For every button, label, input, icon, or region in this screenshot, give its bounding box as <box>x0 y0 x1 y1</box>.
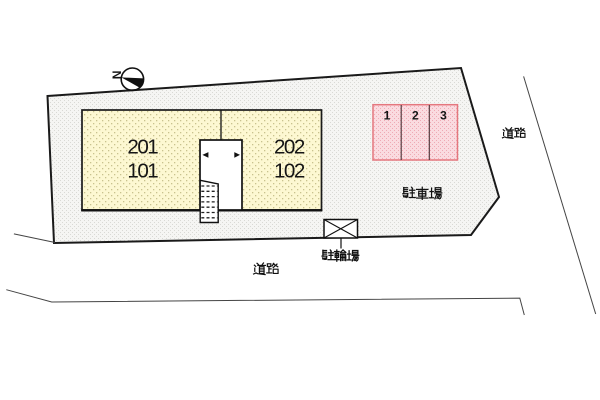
svg-text:201: 201 <box>127 135 158 158</box>
svg-text:102: 102 <box>274 159 305 182</box>
svg-text:101: 101 <box>127 159 158 182</box>
svg-text:2: 2 <box>412 108 419 122</box>
svg-text:1: 1 <box>384 108 391 122</box>
svg-text:N: N <box>110 71 124 80</box>
svg-text:202: 202 <box>274 135 305 158</box>
svg-text:3: 3 <box>440 108 447 122</box>
